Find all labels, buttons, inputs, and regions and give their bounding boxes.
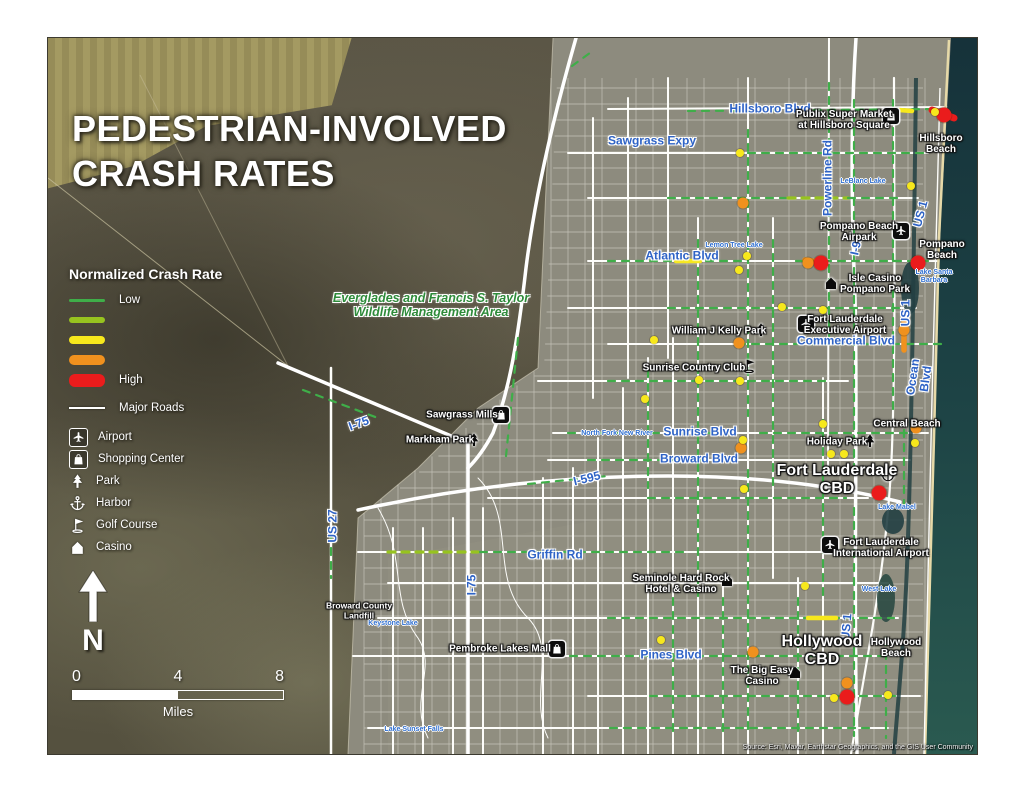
legend-rate-row-4	[69, 350, 222, 370]
attribution: Source: Esri, Maxar, Earthstar Geographi…	[743, 744, 973, 751]
major-roads-label: Major Roads	[119, 402, 184, 414]
legend-poi-label-shopping: Shopping Center	[98, 453, 184, 465]
map-canvas[interactable]: Hillsboro BlvdSawgrass ExpyPowerline RdU…	[47, 37, 978, 755]
legend-poi-row-harbor: Harbor	[69, 492, 222, 514]
rate-label-1: Low	[119, 294, 140, 306]
legend-poi-label-golf: Golf Course	[96, 519, 157, 531]
legend: Normalized Crash Rate LowHigh Major Road…	[69, 266, 222, 558]
shopping-icon	[69, 450, 88, 469]
title-line2: CRASH RATES	[72, 151, 507, 196]
legend-poi-row-park: Park	[69, 470, 222, 492]
rate-swatch-5	[69, 374, 105, 387]
legend-poi-row-shopping: Shopping Center	[69, 448, 222, 470]
legend-major-roads-row: Major Roads	[69, 398, 222, 418]
legend-poi-row-golf: Golf Course	[69, 514, 222, 536]
scale-tick-4: 4	[174, 668, 183, 686]
legend-poi-label-park: Park	[96, 475, 120, 487]
legend-poi-label-casino: Casino	[96, 541, 132, 553]
legend-rate-row-5: High	[69, 370, 222, 390]
page-title: PEDESTRIAN-INVOLVED CRASH RATES	[72, 106, 507, 196]
rate-swatch-4	[69, 355, 105, 365]
scale-ticks: 0 4 8	[72, 668, 284, 686]
park-icon	[69, 473, 86, 490]
crash-segment-level-1	[303, 390, 378, 418]
scale-bar: 0 4 8 Miles	[72, 668, 284, 719]
title-line1: PEDESTRIAN-INVOLVED	[72, 106, 507, 151]
rate-swatch-3	[69, 336, 105, 344]
legend-rate-row-1: Low	[69, 290, 222, 310]
legend-heading: Normalized Crash Rate	[69, 266, 222, 282]
legend-poi-row-casino: Casino	[69, 536, 222, 558]
casino-icon	[69, 539, 86, 556]
page: Hillsboro BlvdSawgrass ExpyPowerline RdU…	[0, 0, 1024, 791]
crash-segment-level-4	[805, 260, 818, 262]
rate-swatch-2	[69, 317, 105, 323]
north-arrow-icon	[76, 570, 110, 622]
rate-label-5: High	[119, 374, 143, 386]
legend-poi-rows: AirportShopping CenterParkHarborGolf Cou…	[69, 426, 222, 558]
scale-tick-8: 8	[275, 668, 284, 686]
crash-segment-level-3	[886, 109, 912, 111]
scale-bar-solid-half	[73, 691, 178, 699]
rate-swatch-1	[69, 299, 105, 302]
harbor-icon	[69, 495, 86, 512]
legend-poi-row-airport: Airport	[69, 426, 222, 448]
legend-rate-rows: LowHigh	[69, 290, 222, 390]
scale-bar-line	[72, 690, 284, 700]
scale-unit: Miles	[72, 704, 284, 719]
major-roads-swatch	[69, 407, 105, 409]
legend-rate-row-2	[69, 310, 222, 330]
legend-poi-label-harbor: Harbor	[96, 497, 131, 509]
north-arrow: N	[70, 570, 116, 654]
legend-rate-row-3	[69, 330, 222, 350]
legend-poi-label-airport: Airport	[98, 431, 132, 443]
scale-tick-0: 0	[72, 668, 81, 686]
north-letter: N	[70, 627, 116, 654]
scale-bar-empty-half	[178, 691, 283, 699]
airport-icon	[69, 428, 88, 447]
golf-icon	[69, 517, 86, 534]
